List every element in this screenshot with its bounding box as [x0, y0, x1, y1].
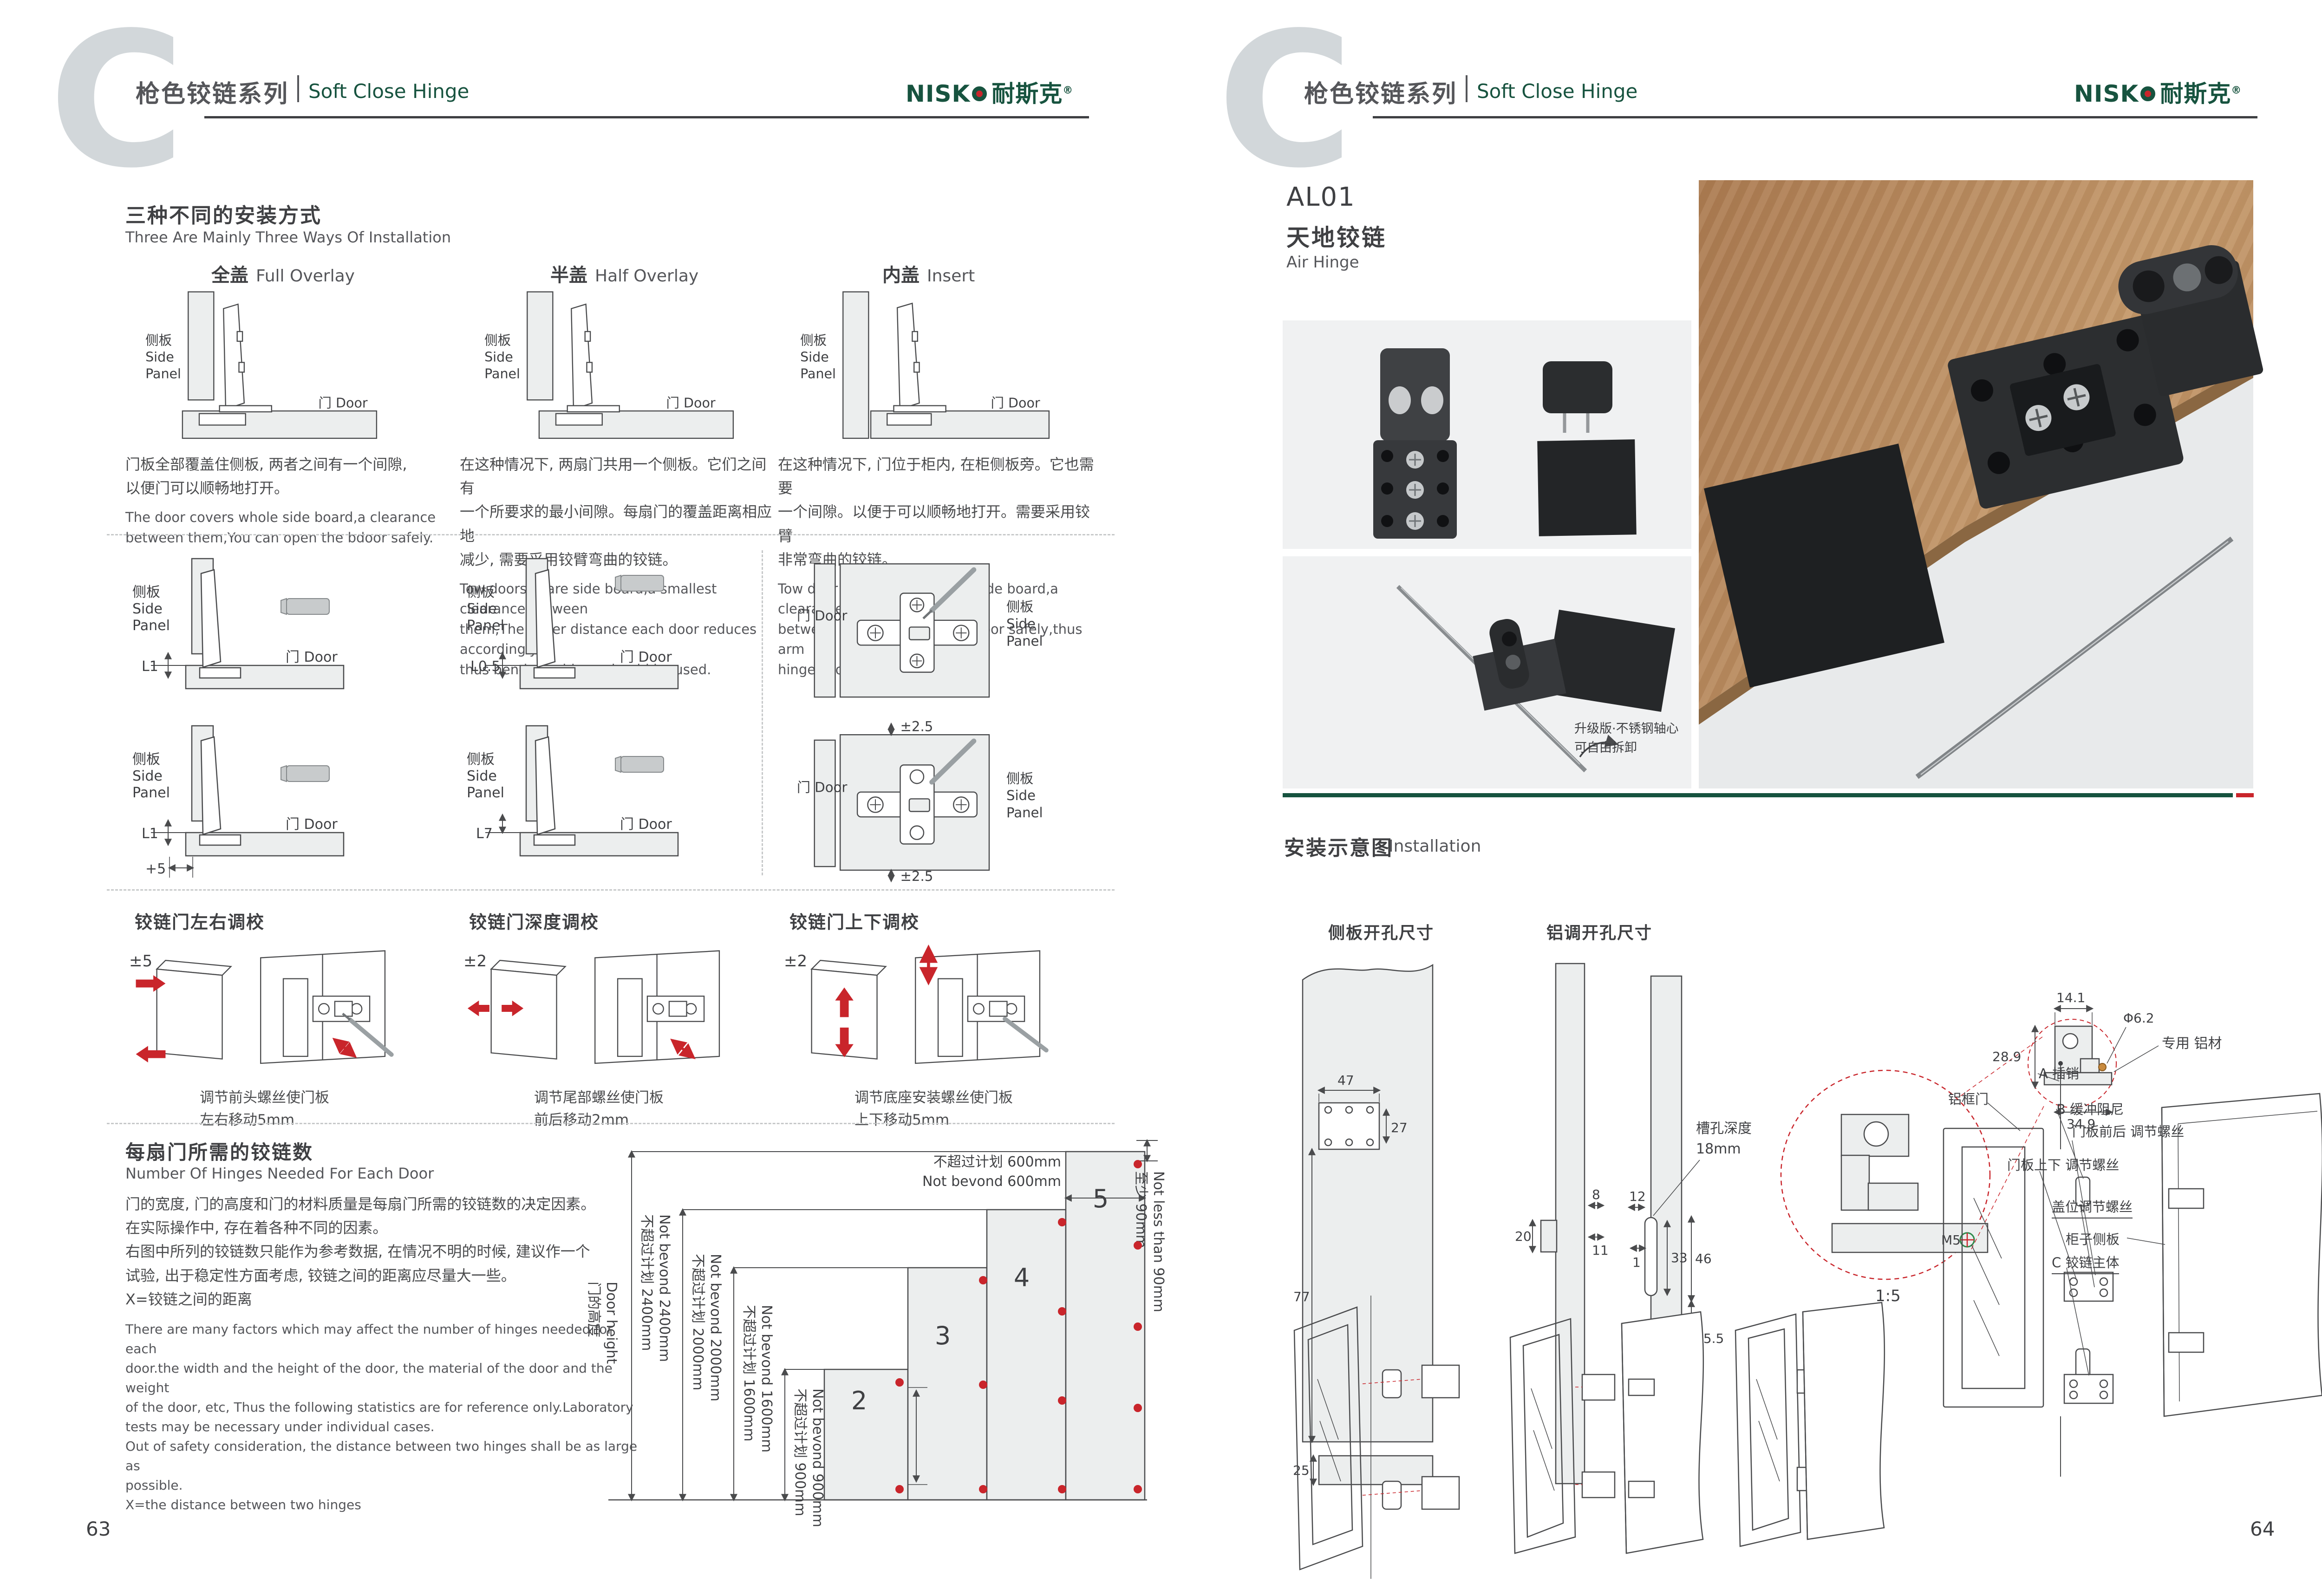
svg-text:侧板: 侧板: [484, 333, 511, 348]
svg-text:L1: L1: [142, 658, 158, 675]
label-alu-frame-door: 铝框门: [1948, 1090, 1989, 1108]
install-title-cn: 安装示意图: [1284, 831, 1393, 861]
alu-drill-title: 铝调开孔尺寸: [1546, 919, 1652, 944]
title-divider: [297, 75, 299, 102]
photo-wood-graphic: [1699, 180, 2253, 788]
svg-text:Panel: Panel: [145, 366, 181, 382]
product-name-cn: 天地铰链: [1286, 219, 1387, 253]
svg-text:27: 27: [1391, 1120, 1408, 1135]
svg-text:Side: Side: [484, 350, 513, 365]
svg-text:11: 11: [1592, 1243, 1609, 1258]
svg-text:5: 5: [1093, 1184, 1109, 1213]
svg-text:Not bevond 2400mm: Not bevond 2400mm: [656, 1214, 672, 1362]
svg-text:Panel: Panel: [1006, 805, 1043, 821]
page-number-left: 63: [86, 1518, 111, 1540]
svg-text:Panel: Panel: [1006, 633, 1043, 649]
svg-text:门 Door: 门 Door: [319, 395, 368, 410]
svg-text:L7: L7: [476, 826, 493, 842]
title-divider-right: [1466, 75, 1468, 102]
adjust-2-diagram: [455, 940, 752, 1084]
svg-text:47: 47: [1337, 1073, 1354, 1088]
clearance-diagram-1: L1 门 Door 侧板 Side Panel: [123, 550, 383, 713]
svg-text:不超过计划 2400mm: 不超过计划 2400mm: [639, 1214, 655, 1351]
svg-text:Side: Side: [132, 601, 163, 617]
clearance-diagram-3: L1 +5 门 Door 侧板 Side Panel: [123, 717, 383, 880]
svg-text:Side: Side: [132, 768, 163, 784]
product-name-en: Air Hinge: [1286, 253, 1359, 272]
svg-text:至少 90mm: 至少 90mm: [1133, 1171, 1149, 1248]
mount-plate-diagram-2: ±2.5 ±2.5 门 Door 侧板 Side Panel: [789, 722, 1124, 885]
svg-text:Side: Side: [145, 350, 174, 365]
svg-text:3: 3: [935, 1321, 951, 1350]
series-title-cn: 枪色铰链系列: [136, 74, 289, 109]
adjust-3-title: 铰链门上下调校: [789, 908, 920, 933]
svg-text:Not bevond 900mm: Not bevond 900mm: [809, 1388, 826, 1527]
hinge-count-chart: 门的高度 Door height 不超过计划 2400mm Not bevond…: [583, 1138, 1159, 1514]
svg-text:门 Door: 门 Door: [797, 608, 848, 624]
product-photo-parts: [1283, 320, 1691, 549]
svg-text:不超过计划 600mm: 不超过计划 600mm: [933, 1154, 1061, 1170]
svg-text:侧板: 侧板: [132, 751, 160, 768]
hinges-title-en: Number Of Hinges Needed For Each Door: [125, 1165, 434, 1182]
svg-text:侧板: 侧板: [467, 751, 495, 768]
svg-text:侧板: 侧板: [467, 584, 495, 600]
svg-text:Panel: Panel: [484, 366, 520, 382]
separator-1: [107, 534, 1115, 535]
svg-text:门 Door: 门 Door: [620, 816, 672, 833]
hinges-title-cn: 每扇门所需的铰链数: [125, 1137, 313, 1165]
svg-text:18mm: 18mm: [1696, 1141, 1741, 1157]
adjust-2-title: 铰链门深度调校: [469, 908, 599, 933]
install-title-en: Installation: [1389, 837, 1481, 856]
svg-text:门 Door: 门 Door: [666, 395, 716, 410]
svg-text:不超过计划 2000mm: 不超过计划 2000mm: [690, 1254, 706, 1390]
mount-plate-diagram-1: 门 Door 侧板 Side Panel: [789, 553, 1124, 715]
assembly-sequence-diagram: [1283, 1286, 1933, 1588]
series-title-en: Soft Close Hinge: [308, 80, 469, 103]
header-rule: [204, 116, 1089, 118]
adjust-2-caption: 调节尾部螺丝使门板 前后移动2mm: [534, 1087, 664, 1131]
svg-text:不超过计划 900mm: 不超过计划 900mm: [792, 1388, 808, 1516]
svg-text:+5: +5: [145, 861, 166, 877]
product-code: AL01: [1286, 182, 1356, 212]
svg-text:20: 20: [1515, 1229, 1532, 1244]
svg-text:侧板: 侧板: [800, 333, 827, 348]
product-photo-rod: 升级版·不锈钢轴心 可自由拆卸: [1283, 556, 1691, 788]
clearance-diagram-4: L7 门 Door 侧板 Side Panel: [457, 717, 717, 880]
hinges-desc-cn: 门的宽度, 门的高度和门的材料质量是每扇门所需的铰链数的决定因素。 在实际操作中…: [125, 1192, 632, 1311]
photo-annotation: 升级版·不锈钢轴心 可自由拆卸: [1574, 720, 1688, 757]
svg-text:L0.5: L0.5: [470, 658, 500, 675]
exploded-assembly-diagram: [1927, 1049, 2322, 1491]
header-rule-right: [1373, 116, 2257, 118]
svg-text:Side: Side: [800, 350, 829, 365]
svg-text:侧板: 侧板: [1006, 770, 1033, 786]
svg-text:33: 33: [1671, 1250, 1688, 1265]
label-cabinet-side: 柜子侧板: [2066, 1231, 2120, 1249]
adjust-1-diagram: [121, 940, 418, 1084]
adjust-3-diagram: [776, 940, 1073, 1084]
svg-text:Door height: Door height: [603, 1282, 620, 1364]
svg-text:L1: L1: [142, 826, 158, 842]
page-number-right: 64: [2250, 1518, 2275, 1540]
svg-text:1: 1: [1632, 1255, 1641, 1270]
svg-text:门的高度: 门的高度: [586, 1282, 602, 1337]
series-title-cn-right: 枪色铰链系列: [1304, 74, 1457, 109]
svg-text:Side: Side: [1006, 788, 1036, 803]
svg-text:Panel: Panel: [800, 366, 836, 382]
brand-en: NISK: [906, 80, 970, 107]
brand-dot-icon: [2140, 86, 2155, 101]
product-photo-wood: [1699, 180, 2253, 788]
separator-2: [107, 889, 1115, 891]
brand-logo: NISK耐斯克®: [906, 75, 1073, 109]
brand-reg: ®: [1063, 85, 1073, 96]
svg-text:±2.5: ±2.5: [900, 718, 933, 734]
svg-text:门 Door: 门 Door: [286, 816, 338, 833]
svg-text:门 Door: 门 Door: [286, 649, 338, 665]
svg-text:Not bevond 2000mm: Not bevond 2000mm: [707, 1254, 724, 1401]
full-overlay-diagram: 侧板 Side Panel 门 Door: [125, 279, 432, 455]
svg-text:门 Door: 门 Door: [797, 780, 848, 795]
svg-text:Not bevond 1600mm: Not bevond 1600mm: [758, 1305, 775, 1453]
svg-text:Panel: Panel: [132, 785, 170, 801]
clearance-diagram-2: L0.5 门 Door 侧板 Side Panel: [457, 550, 717, 713]
label-cover-screw: 盖位调节螺丝: [2052, 1198, 2133, 1218]
catalog-spread: C 枪色铰链系列 Soft Close Hinge NISK耐斯克® 三种不同的…: [0, 0, 2322, 1596]
svg-text:侧板: 侧板: [1006, 599, 1033, 614]
methods-title-en: Three Are Mainly Three Ways Of Installat…: [125, 228, 451, 246]
svg-text:Panel: Panel: [132, 618, 170, 634]
series-title-en-right: Soft Close Hinge: [1477, 80, 1637, 103]
green-rule-red-tip: [2236, 793, 2254, 797]
svg-text:Φ6.2: Φ6.2: [2123, 1010, 2154, 1026]
svg-text:Side: Side: [467, 768, 497, 784]
label-hinge-body: C 铰链主体: [2052, 1254, 2119, 1274]
svg-text:14.1: 14.1: [2056, 990, 2085, 1005]
brand-logo-right: NISK耐斯克®: [2074, 75, 2242, 109]
svg-text:Not bevond 600mm: Not bevond 600mm: [922, 1173, 1061, 1190]
label-front-back-screw: 门板前后 调节螺丝: [2072, 1123, 2184, 1141]
hinges-desc-en: There are many factors which may affect …: [125, 1320, 646, 1515]
svg-text:门 Door: 门 Door: [991, 395, 1040, 410]
svg-text:Panel: Panel: [467, 785, 504, 801]
svg-text:门 Door: 门 Door: [620, 649, 672, 665]
svg-text:Panel: Panel: [467, 618, 504, 634]
insert-diagram: 侧板 Side Panel 门 Door: [780, 279, 1087, 455]
brand-cn: 耐斯克: [991, 80, 1063, 107]
brand-dot-icon: [972, 86, 987, 101]
photo-parts-graphic: [1283, 320, 1691, 549]
svg-text:±2.5: ±2.5: [900, 868, 933, 884]
separator-vertical: [762, 550, 763, 875]
svg-text:2: 2: [851, 1386, 867, 1415]
side-drill-title: 侧板开孔尺寸: [1328, 919, 1434, 944]
green-rule: [1283, 793, 2233, 797]
methods-title-cn: 三种不同的安装方式: [125, 199, 322, 228]
svg-text:Side: Side: [467, 601, 497, 617]
adjust-1-title: 铰链门左右调校: [135, 908, 265, 933]
adjust-3-caption: 调节底座安装螺丝使门板 上下移动5mm: [854, 1087, 1013, 1131]
adjust-1-caption: 调节前头螺丝使门板 左右移动5mm: [200, 1087, 329, 1131]
separator-3: [107, 1123, 1115, 1124]
svg-text:不超过计划 1600mm: 不超过计划 1600mm: [741, 1305, 757, 1441]
svg-text:侧板: 侧板: [145, 333, 172, 348]
label-up-down-screw: 门板上下 调节螺丝: [2007, 1156, 2119, 1174]
half-overlay-diagram: 侧板 Side Panel 门 Door: [464, 279, 771, 455]
label-pin: A 插销: [2039, 1065, 2079, 1083]
svg-text:槽孔深度: 槽孔深度: [1696, 1120, 1752, 1137]
svg-text:12: 12: [1629, 1189, 1646, 1204]
svg-text:4: 4: [1014, 1263, 1030, 1292]
svg-text:侧板: 侧板: [132, 584, 160, 600]
svg-text:Not less than 90mm: Not less than 90mm: [1150, 1171, 1167, 1312]
svg-text:8: 8: [1592, 1187, 1600, 1202]
svg-text:46: 46: [1695, 1251, 1712, 1266]
svg-text:Side: Side: [1006, 616, 1036, 632]
label-damper: B 缓冲阻尼: [2056, 1101, 2124, 1119]
